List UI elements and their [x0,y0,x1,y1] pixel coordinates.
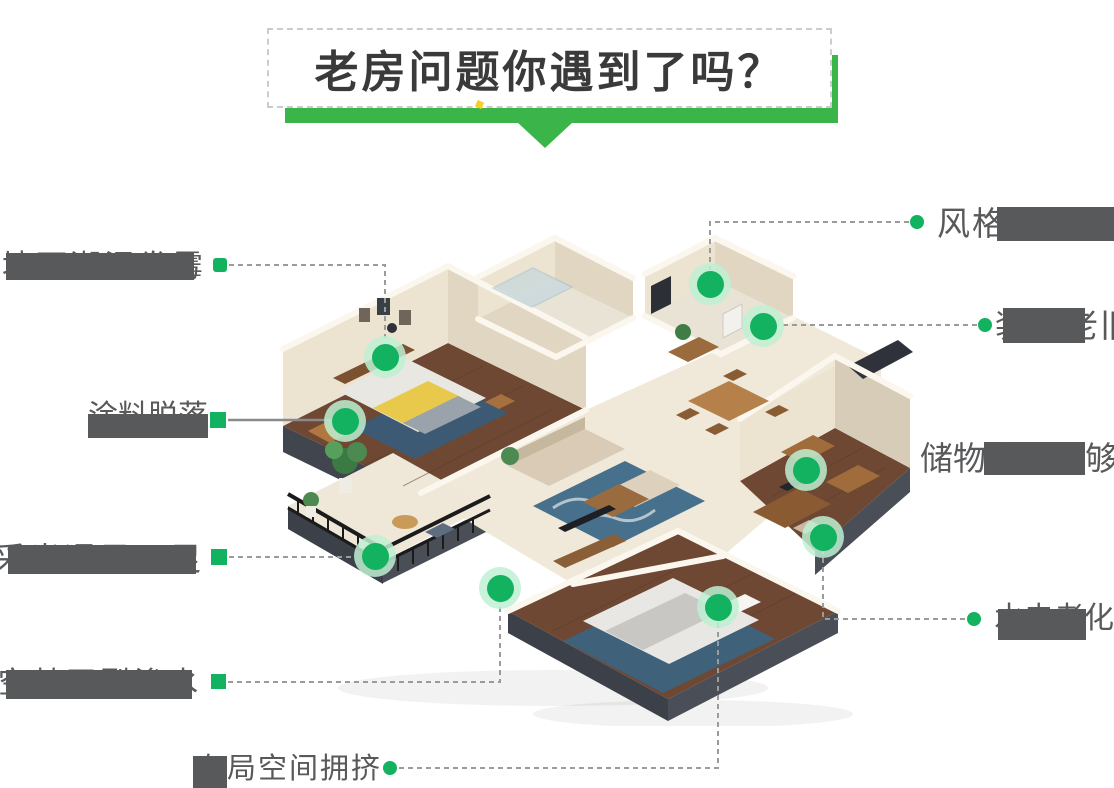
callout-poor-lighting: 采光通风不足 [0,542,204,577]
label-mask [88,414,208,438]
label-mask [997,207,1114,241]
marker-core [362,543,389,570]
callout-insufficient-storage: 储物空间不够 [920,441,1114,477]
problem-marker-living-threshold-spot[interactable] [479,567,521,609]
label-mask [984,442,1085,475]
callout-paint-peeling: 涂料脱落 [88,400,208,433]
marker-core [332,408,359,435]
marker-core [793,457,820,484]
problem-marker-bedroom-wall-spot[interactable] [364,336,406,378]
marker-core [697,271,724,298]
problem-marker-bookshelf-spot[interactable] [785,449,827,491]
callout-old-decoration: 装修老旧 [995,308,1114,344]
label-mask [8,545,196,574]
marker-core [750,313,777,340]
callout-aging-plumbing-wiring: 水电老化 [994,602,1114,635]
callout-outdated-style: 风格过时 [937,206,1077,242]
problem-marker-utility-room-spot[interactable] [689,263,731,305]
old-house-problems-infographic: 老房问题你遇到了吗？ [0,0,1114,785]
problem-marker-study-desk-spot[interactable] [802,516,844,558]
problem-marker-second-bedroom-spot[interactable] [697,586,739,628]
problem-marker-balcony-spot[interactable] [354,535,396,577]
marker-core [372,344,399,371]
marker-core [487,575,514,602]
problem-marker-bedroom-bedside-spot[interactable] [324,400,366,442]
problem-marker-entry-bath-spot[interactable] [742,305,784,347]
callout-crowded-layout: 布局空间拥挤 [196,754,382,786]
marker-core [810,524,837,551]
callout-wall-mildew: 墙面潮湿发霉 [2,250,206,284]
marker-core [705,594,732,621]
callout-hollow-crack-seepage: 空鼓开裂渗水 [0,667,202,700]
label-mask [998,609,1086,640]
label-mask [193,756,227,788]
label-mask [1003,308,1085,343]
label-mask [6,253,194,280]
label-mask [6,670,192,699]
